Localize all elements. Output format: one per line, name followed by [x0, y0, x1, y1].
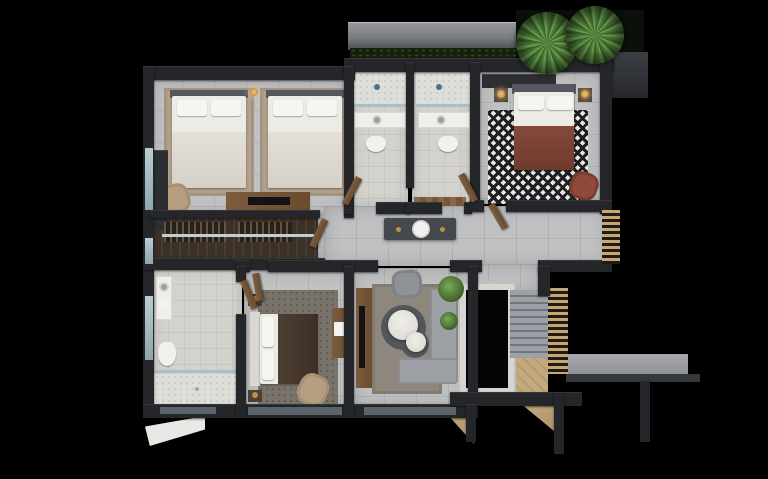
master-throw-blanket — [514, 126, 574, 170]
living-tv — [359, 306, 365, 368]
right-ledge — [566, 354, 688, 374]
bath-a-shower — [352, 72, 408, 104]
closet-clothes-left — [164, 222, 226, 242]
bed1-pillow-right — [211, 100, 241, 116]
living-plant-small — [440, 312, 458, 330]
window-bottom-bedroom3 — [248, 407, 342, 415]
corridor-floor — [324, 206, 608, 266]
window-bottom-living — [364, 407, 456, 415]
living-armchair — [391, 269, 423, 300]
hall-console-plate — [412, 220, 430, 238]
bed2-pillow-right — [307, 100, 337, 116]
bed1-pillow-left — [177, 100, 207, 116]
bedroom1-sconce — [250, 88, 258, 96]
wall-living-stairs-divider — [468, 266, 478, 408]
bed2-pillow-left — [273, 100, 303, 116]
bath-a-shower-head — [374, 84, 380, 90]
wall-bath2-bed3-divider — [236, 314, 246, 418]
wall-bath-b-bottom-left — [406, 202, 442, 214]
bath-b-toilet — [438, 136, 458, 152]
bath-a-sink — [372, 115, 382, 125]
wall-bedroom1-top — [143, 66, 355, 80]
bath2-toilet — [158, 342, 176, 366]
wall-bath-divider — [406, 62, 414, 188]
wall-stub-below-2 — [554, 392, 564, 454]
closet-clothes-right — [238, 222, 292, 242]
hall-console-knob-left — [396, 227, 401, 232]
master-lamp-left — [497, 90, 505, 98]
bath-a-shower-glass — [352, 104, 408, 107]
bath-b-shower — [416, 72, 472, 104]
bedroom1-tv — [248, 197, 290, 205]
right-ledge-edge — [566, 374, 700, 382]
top-right-eave — [610, 52, 648, 98]
b3-pillow-bottom — [262, 350, 274, 380]
bath-b-shower-glass — [416, 104, 472, 107]
bottom-left-white-wing — [145, 416, 205, 446]
living-plant-large — [438, 276, 464, 302]
b3-pillow-top — [262, 317, 274, 347]
bed1-duvet — [172, 132, 246, 188]
stair-slat-screen — [548, 288, 568, 374]
window-bottom-bathroom2 — [160, 407, 216, 414]
wall-bath-a-bottom-right — [376, 202, 410, 214]
window-left-bathroom2 — [145, 296, 153, 360]
bed2-duvet — [268, 132, 342, 188]
wall-master-bottom-right — [506, 200, 612, 212]
b3-brass-bottom — [252, 392, 258, 398]
wall-landing-right — [538, 266, 550, 296]
coffee-table-small — [406, 332, 426, 352]
wall-bedroom3-top — [268, 260, 352, 272]
hall-console-knob-right — [440, 227, 445, 232]
wall-bedroom1-closet — [150, 210, 320, 218]
bath2-shower-glass — [154, 370, 242, 373]
sofa-chaise — [398, 358, 458, 384]
wall-bed3-living-divider — [344, 266, 354, 418]
master-lamp-right — [581, 90, 589, 98]
bath2-sink — [159, 282, 169, 292]
bedroom1-wardrobe — [152, 150, 168, 230]
master-pillow-right — [547, 96, 573, 110]
window-left-closet — [145, 238, 153, 264]
master-pillow-left — [518, 96, 544, 110]
concrete-lightwell-wall — [348, 22, 518, 50]
bath2-drain — [194, 386, 200, 392]
window-left-bedroom1 — [145, 148, 153, 210]
right-wall-vertical — [640, 380, 650, 442]
bath-b-shower-head — [436, 84, 442, 90]
stair-treads — [510, 290, 548, 358]
bath-b-sink — [436, 115, 446, 125]
wall-stub-below-1 — [466, 404, 476, 442]
bath2-towel — [158, 300, 170, 308]
palm-tree-right — [566, 6, 624, 64]
bath-a-toilet — [366, 136, 386, 152]
wall-master-right — [600, 58, 612, 214]
hall-slat-screen — [602, 210, 620, 264]
b3-headboard — [250, 312, 260, 386]
floor-plan-render: 3D rendered top-down floor plan of an ap… — [0, 0, 768, 479]
closet-rail — [162, 234, 314, 237]
